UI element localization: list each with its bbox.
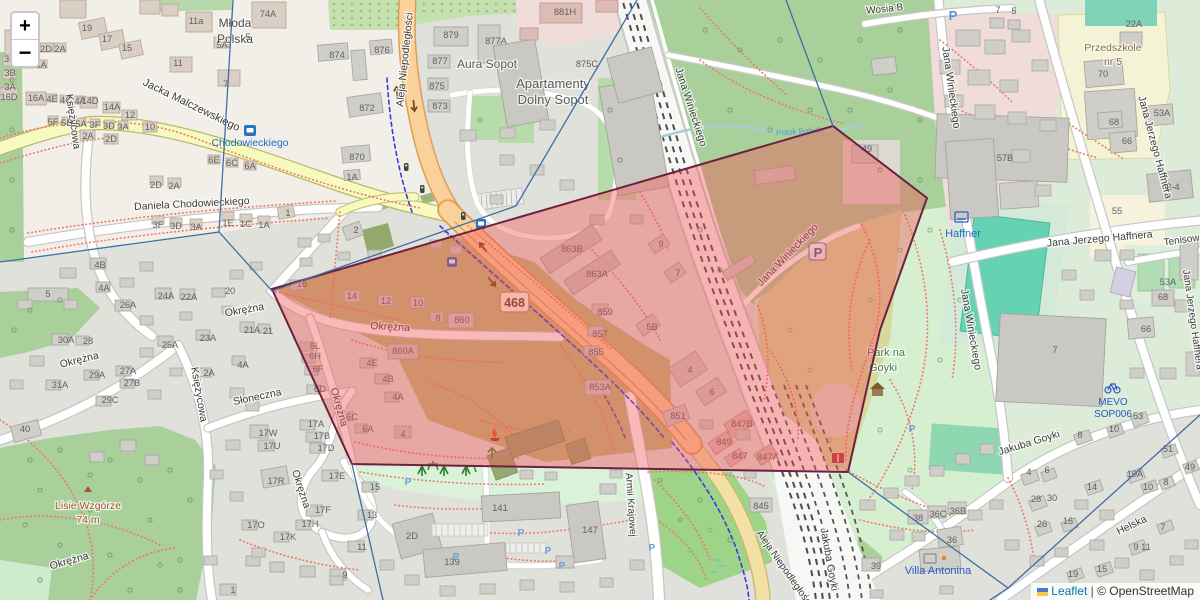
- svg-text:877A: 877A: [485, 36, 508, 46]
- svg-text:2D: 2D: [40, 44, 52, 54]
- svg-text:30A: 30A: [58, 335, 75, 345]
- svg-text:36C: 36C: [929, 509, 946, 519]
- svg-text:29C: 29C: [101, 395, 118, 405]
- svg-text:6C: 6C: [226, 158, 238, 168]
- svg-text:5A: 5A: [75, 119, 87, 129]
- svg-text:13: 13: [367, 510, 377, 520]
- svg-text:55: 55: [1112, 206, 1122, 216]
- svg-text:11: 11: [173, 58, 183, 68]
- svg-text:3A: 3A: [4, 82, 16, 92]
- svg-text:17D: 17D: [317, 443, 334, 453]
- svg-text:12: 12: [125, 110, 135, 120]
- svg-text:15: 15: [1097, 564, 1107, 574]
- svg-text:2A: 2A: [203, 368, 215, 378]
- svg-text:17A: 17A: [308, 419, 325, 429]
- svg-text:29A: 29A: [89, 370, 106, 380]
- svg-text:17B: 17B: [314, 431, 331, 441]
- svg-text:2A: 2A: [82, 131, 94, 141]
- svg-text:10: 10: [145, 122, 155, 132]
- svg-text:7: 7: [1052, 345, 1057, 355]
- svg-text:17O: 17O: [247, 520, 265, 530]
- svg-text:P: P: [545, 546, 552, 557]
- svg-text:16D: 16D: [0, 92, 17, 102]
- svg-text:28: 28: [1031, 494, 1041, 504]
- svg-text:24A: 24A: [158, 291, 175, 301]
- svg-text:1A: 1A: [258, 220, 270, 230]
- svg-text:5A: 5A: [216, 40, 228, 50]
- svg-text:19: 19: [82, 23, 92, 33]
- svg-text:4: 4: [1026, 467, 1031, 477]
- svg-text:15: 15: [370, 482, 380, 492]
- svg-text:4C: 4C: [60, 95, 72, 105]
- svg-text:17W: 17W: [258, 428, 277, 438]
- svg-text:4A: 4A: [74, 96, 86, 106]
- svg-text:872: 872: [359, 103, 375, 113]
- svg-text:2D: 2D: [406, 531, 418, 541]
- svg-text:36: 36: [947, 535, 957, 545]
- svg-text:1C: 1C: [240, 219, 252, 229]
- svg-text:1: 1: [230, 585, 235, 595]
- svg-text:21: 21: [263, 326, 273, 336]
- svg-text:11a: 11a: [189, 16, 205, 26]
- svg-text:17: 17: [102, 34, 112, 44]
- svg-text:4A: 4A: [237, 360, 249, 370]
- svg-text:1E: 1E: [222, 218, 233, 228]
- svg-text:38: 38: [913, 513, 923, 523]
- svg-text:53A: 53A: [1154, 108, 1171, 118]
- svg-text:26A: 26A: [120, 300, 137, 310]
- svg-text:4B: 4B: [94, 260, 105, 270]
- svg-text:nr 5: nr 5: [1104, 56, 1122, 68]
- svg-text:57B: 57B: [997, 153, 1014, 163]
- svg-text:28: 28: [83, 336, 93, 346]
- svg-text:25A: 25A: [162, 340, 179, 350]
- svg-text:877: 877: [432, 56, 448, 66]
- svg-text:6: 6: [1044, 465, 1049, 475]
- svg-text:9: 9: [1133, 542, 1138, 552]
- svg-text:2D: 2D: [105, 134, 117, 144]
- svg-text:6E: 6E: [208, 155, 219, 165]
- svg-text:3D: 3D: [103, 121, 115, 131]
- svg-text:14: 14: [1087, 482, 1097, 492]
- svg-text:5F: 5F: [48, 117, 59, 127]
- svg-text:27B: 27B: [124, 378, 141, 388]
- svg-text:P: P: [949, 8, 958, 23]
- svg-text:16: 16: [1063, 516, 1073, 526]
- svg-text:Młoda: Młoda: [219, 16, 252, 30]
- svg-text:49: 49: [1185, 462, 1195, 472]
- svg-text:68: 68: [1109, 117, 1119, 127]
- svg-text:875C: 875C: [576, 59, 599, 69]
- svg-text:Apartamenty: Apartamenty: [516, 76, 590, 91]
- svg-text:2A: 2A: [54, 44, 66, 54]
- svg-text:873: 873: [432, 101, 448, 111]
- svg-text:17K: 17K: [280, 532, 297, 542]
- svg-text:7: 7: [1160, 522, 1165, 532]
- svg-text:17R: 17R: [267, 476, 284, 486]
- svg-text:870: 870: [349, 152, 365, 162]
- svg-text:Przedszkole: Przedszkole: [1084, 42, 1141, 54]
- svg-text:875: 875: [429, 81, 445, 91]
- svg-text:147: 147: [582, 525, 598, 535]
- svg-text:17E: 17E: [329, 471, 346, 481]
- svg-text:3F: 3F: [90, 120, 101, 130]
- svg-text:876: 876: [374, 45, 390, 55]
- svg-text:10: 10: [1109, 424, 1119, 434]
- svg-text:2D: 2D: [150, 180, 162, 190]
- svg-text:P: P: [405, 477, 412, 488]
- svg-text:141: 141: [492, 503, 508, 513]
- svg-text:5: 5: [1011, 6, 1016, 16]
- svg-text:10: 10: [1143, 482, 1153, 492]
- svg-text:15: 15: [122, 43, 132, 53]
- svg-text:2A: 2A: [168, 181, 180, 191]
- svg-text:26: 26: [1037, 519, 1047, 529]
- svg-text:845: 845: [753, 501, 769, 511]
- svg-text:3F: 3F: [153, 220, 164, 230]
- svg-text:9: 9: [342, 570, 347, 580]
- svg-text:Haffner: Haffner: [945, 228, 981, 240]
- svg-text:Lisie Wzgórze: Lisie Wzgórze: [55, 500, 121, 512]
- svg-text:7: 7: [995, 5, 1000, 15]
- svg-text:21A: 21A: [244, 325, 261, 335]
- svg-text:3A: 3A: [117, 122, 129, 132]
- svg-text:70: 70: [1098, 69, 1108, 79]
- svg-text:5: 5: [45, 289, 50, 299]
- svg-text:3D: 3D: [170, 221, 182, 231]
- svg-text:P: P: [649, 543, 656, 554]
- svg-text:P: P: [909, 424, 916, 435]
- svg-text:30: 30: [1047, 493, 1057, 503]
- svg-text:39: 39: [871, 561, 881, 571]
- svg-text:11: 11: [357, 542, 367, 552]
- svg-text:40: 40: [20, 424, 30, 434]
- svg-text:4E: 4E: [46, 94, 57, 104]
- svg-text:1: 1: [285, 208, 290, 218]
- svg-text:17F: 17F: [315, 505, 331, 515]
- svg-text:16A: 16A: [28, 93, 45, 103]
- svg-text:11: 11: [1141, 542, 1151, 552]
- svg-text:22A: 22A: [181, 292, 198, 302]
- svg-text:P: P: [559, 561, 566, 572]
- svg-text:66: 66: [1122, 136, 1132, 146]
- svg-text:8: 8: [1077, 430, 1082, 440]
- svg-text:53: 53: [1133, 411, 1143, 421]
- svg-text:SOP006: SOP006: [1094, 409, 1132, 420]
- svg-text:3A: 3A: [190, 222, 202, 232]
- svg-text:68: 68: [1158, 292, 1168, 302]
- svg-text:74 m: 74 m: [76, 514, 100, 526]
- svg-text:53A: 53A: [1160, 277, 1177, 287]
- svg-text:3B: 3B: [4, 68, 15, 78]
- svg-text:22A: 22A: [1126, 19, 1143, 29]
- svg-text:8: 8: [1163, 477, 1168, 487]
- svg-text:14A: 14A: [104, 102, 121, 112]
- svg-text:139: 139: [444, 557, 460, 567]
- svg-text:1A: 1A: [346, 172, 358, 182]
- svg-text:74A: 74A: [260, 9, 277, 19]
- svg-text:P: P: [518, 528, 525, 539]
- svg-text:874: 874: [329, 50, 345, 60]
- svg-text:5D: 5D: [61, 118, 73, 128]
- svg-text:27A: 27A: [120, 366, 137, 376]
- svg-text:Aura Sopot: Aura Sopot: [457, 57, 518, 71]
- svg-text:17U: 17U: [263, 441, 280, 451]
- svg-text:31A: 31A: [52, 380, 69, 390]
- svg-text:36B: 36B: [950, 506, 967, 516]
- svg-text:881H: 881H: [554, 7, 576, 17]
- svg-text:4A: 4A: [98, 283, 110, 293]
- svg-text:MEVO: MEVO: [1098, 397, 1128, 408]
- svg-text:2: 2: [353, 225, 358, 235]
- svg-text:879: 879: [443, 30, 459, 40]
- svg-text:20: 20: [225, 286, 235, 296]
- svg-text:Chodowieckiego: Chodowieckiego: [211, 137, 288, 149]
- svg-text:66: 66: [1141, 324, 1151, 334]
- svg-text:5: 5: [245, 32, 250, 42]
- svg-text:23A: 23A: [200, 333, 217, 343]
- svg-text:17H: 17H: [301, 519, 318, 529]
- svg-text:Villa Antonina: Villa Antonina: [905, 565, 972, 577]
- svg-text:19: 19: [1068, 569, 1078, 579]
- svg-text:2-4: 2-4: [1166, 182, 1179, 192]
- svg-text:6A: 6A: [244, 161, 256, 171]
- svg-text:51: 51: [1163, 444, 1173, 454]
